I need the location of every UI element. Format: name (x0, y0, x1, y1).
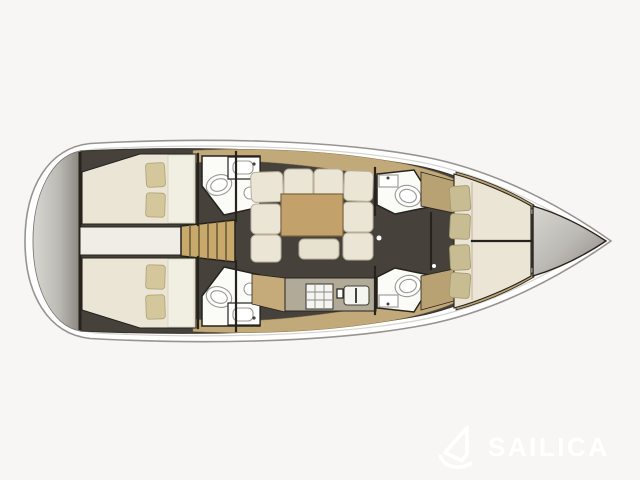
sailica-watermark: SAILICA (434, 421, 610, 473)
door-knob (377, 236, 382, 241)
pillow (145, 162, 165, 187)
pillow (146, 295, 166, 320)
watermark-brand-text: SAILICA (488, 434, 610, 460)
pillow (449, 244, 470, 270)
galley (252, 274, 376, 312)
saloon-table (281, 194, 343, 236)
pillow (146, 265, 166, 290)
pillow (146, 193, 166, 218)
pillow (449, 185, 471, 211)
companionway-steps (181, 220, 235, 262)
boat-floorplan-image: SAILICA (0, 0, 640, 480)
stove (306, 284, 333, 309)
sail-logo-icon (434, 422, 478, 472)
saloon-bench (299, 239, 339, 259)
pillow (449, 213, 470, 239)
pillow (449, 272, 471, 298)
door-knob (432, 264, 436, 268)
yacht-floorplan (0, 0, 640, 480)
